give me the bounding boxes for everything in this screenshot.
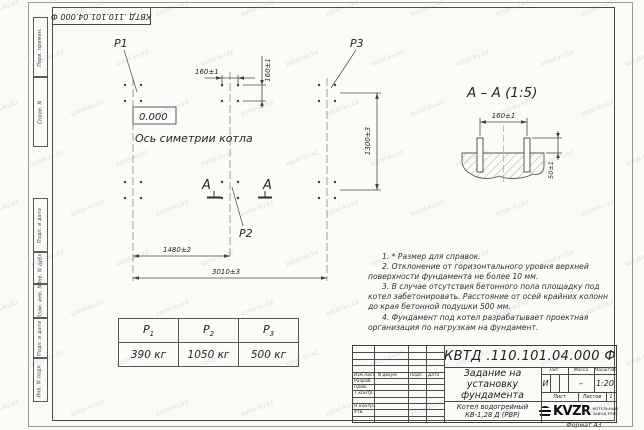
dim-1480: 1480±2 — [163, 246, 192, 254]
format-label: Формат А3 — [549, 422, 619, 429]
load-table-header-row: P1 P2 P3 — [119, 319, 299, 343]
corner-doc-number: КВТД .110.101.04.000 Ф — [51, 12, 151, 21]
margin-label: Взам. инв. N — [38, 284, 43, 318]
title-block-grid-line — [444, 401, 616, 402]
margin-label: Подп. и дата — [38, 207, 43, 242]
title-block-grid-line — [541, 367, 542, 422]
tb-doc-number: КВТД .110.101.04.000 Ф — [444, 346, 616, 367]
title-block-grid-line — [353, 403, 444, 404]
title-block-grid-line — [353, 378, 444, 379]
load-value-p3: 500 кг — [239, 343, 299, 367]
tb-doc-title: Задание на установку фундамента — [444, 367, 541, 401]
title-block-grid-line — [353, 384, 444, 385]
section-title: А – А (1:5) — [466, 85, 537, 101]
margin-box-inv-dubl: Инв. N дубл. — [33, 252, 48, 284]
p-sub: 2 — [210, 330, 214, 338]
technical-notes: 1. * Размер для справок. 2. Отклонение о… — [368, 252, 614, 333]
tb-col-data: Дата — [428, 373, 439, 378]
margin-box-vzam-inv: Взам. инв. N — [33, 284, 48, 318]
load-table-header-p3: P3 — [239, 319, 299, 343]
title-block-grid-line — [353, 372, 444, 373]
tb-sheets-label: Листов — [578, 392, 606, 401]
corner-doc-number-stamp: КВТД .110.101.04.000 Ф — [52, 7, 151, 25]
note-4: 4. Фундамент под котел разрабатывает про… — [368, 313, 614, 333]
margin-box-perv-primen: Перв. примен. — [33, 17, 48, 77]
title-block-grid-line — [550, 374, 551, 392]
load-point-p1-label: P1 — [114, 37, 128, 50]
watermark-text: kotel-kv.kz — [0, 198, 20, 218]
p-sub: 1 — [150, 330, 154, 338]
load-table-header-p2: P2 — [179, 319, 239, 343]
title-block-grid-line — [594, 367, 595, 392]
title-block-grid-line — [353, 416, 444, 417]
kvzr-tagline-line2: ЗАВОД РЭП — [593, 411, 616, 416]
title-block-grid-line — [353, 365, 444, 366]
title-block-grid-line — [578, 392, 579, 401]
tb-sheet-label: Лист — [541, 392, 578, 401]
tb-sheets-value: 1 — [606, 392, 616, 401]
tb-col-podp: Подп. — [410, 373, 423, 378]
tb-mass-label: Масса — [568, 367, 594, 374]
load-table-value-row: 390 кг 1050 кг 500 кг — [119, 343, 299, 367]
p-sub: 3 — [270, 330, 274, 338]
dim-160-vertical: 160±1 — [264, 58, 272, 82]
load-table: P1 P2 P3 390 кг 1050 кг 500 кг — [118, 318, 299, 367]
tb-col-n-dokum: N докум. — [378, 373, 398, 378]
tb-col-izm-list: Изм.Лист — [354, 373, 375, 378]
title-block-grid-line — [541, 374, 616, 375]
tb-row-tkontr: Т.контр. — [354, 391, 374, 396]
watermark-text: kotel-kv.kz — [0, 398, 20, 418]
p-base: P — [203, 323, 210, 336]
title-block-grid-line — [568, 367, 569, 392]
watermark-text: kotel-kv.kz — [0, 0, 20, 18]
title-block-grid-line — [353, 409, 444, 410]
load-point-p2-label: P2 — [239, 227, 253, 240]
title-block-grid-line — [444, 346, 445, 422]
section-letter-right: А — [262, 178, 272, 193]
kvzr-tagline: КОТЕЛЬНЫЙ ЗАВОД РЭП — [593, 407, 619, 416]
title-block-grid-line — [606, 392, 607, 401]
dim-160-horizontal: 160±1 — [195, 68, 219, 76]
tb-scale-label: Масштаб — [594, 367, 616, 374]
section-a-a-view: А – А (1:5) 160±1 50±1 — [435, 75, 620, 193]
concrete-block — [462, 153, 544, 178]
tb-row-utv: Утв. — [354, 410, 364, 415]
p-base: P — [143, 323, 150, 336]
dim-1300: 1300±3 — [364, 127, 372, 155]
p-base: P — [263, 323, 270, 336]
title-block: Изм.Лист N докум. Подп. Дата Разраб. Про… — [352, 345, 617, 423]
drawing-sheet: { "sheet": { "corner_stamp": "КВТД .110.… — [0, 0, 644, 430]
tb-scale-value: 1:20 — [594, 374, 616, 392]
section-dim-50: 50±1 — [547, 161, 555, 179]
title-block-grid-line — [559, 374, 560, 392]
margin-box-sprav-n: Справ. N — [33, 77, 48, 147]
foundation-plan-view: 0.000 Ось симетрии котла P1 P3 P2 А А 16… — [88, 28, 433, 290]
margin-box-podp-data-2: Подп. и дата — [33, 318, 48, 358]
tb-logo-cell: KVZR КОТЕЛЬНЫЙ ЗАВОД РЭП — [541, 401, 616, 422]
load-table-header-p1: P1 — [119, 319, 179, 343]
watermark-text: kotel-kv.kz — [0, 298, 20, 318]
title-block-grid-line — [444, 367, 616, 368]
note-3: 3. В случае отсутствия бетонного пола пл… — [368, 282, 614, 312]
margin-box-podp-data-1: Подп. и дата — [33, 198, 48, 252]
margin-label: Справ. N — [38, 100, 43, 124]
title-block-grid-line — [353, 359, 444, 360]
title-block-grid-line — [353, 390, 444, 391]
title-block-grid-line — [353, 397, 444, 398]
symmetry-axis-label: Ось симетрии котла — [135, 132, 253, 145]
level-mark: 0.000 — [139, 112, 168, 123]
tb-mass-value: – — [568, 374, 594, 392]
kvzr-logo-text: KVZR — [553, 404, 591, 419]
note-1: 1. * Размер для справок. — [368, 252, 614, 262]
tb-lit-label: Лит. — [541, 367, 568, 374]
margin-label: Инв. N подл. — [38, 363, 43, 397]
section-letter-left: А — [201, 178, 211, 193]
margin-label: Инв. N дубл. — [38, 252, 43, 284]
tb-product-name: Котел водогрейный КВ-1,28 Д (РВР) — [444, 401, 541, 422]
margin-label: Подп. и дата — [38, 320, 43, 355]
load-value-p2: 1050 кг — [179, 343, 239, 367]
watermark-text: kotel-kv.kz — [0, 98, 20, 118]
note-2: 2. Отклонение от горизонтального уровня … — [368, 262, 614, 282]
margin-box-inv-podl: Инв. N подл. — [33, 358, 48, 402]
margin-label: Перв. примен. — [38, 28, 43, 67]
dim-3010: 3010±3 — [212, 268, 240, 276]
section-dim-160: 160±1 — [492, 112, 516, 120]
load-point-p3-label: P3 — [350, 37, 364, 50]
title-block-grid-line — [353, 352, 444, 353]
load-value-p1: 390 кг — [119, 343, 179, 367]
tb-lit-value: И — [541, 374, 550, 392]
